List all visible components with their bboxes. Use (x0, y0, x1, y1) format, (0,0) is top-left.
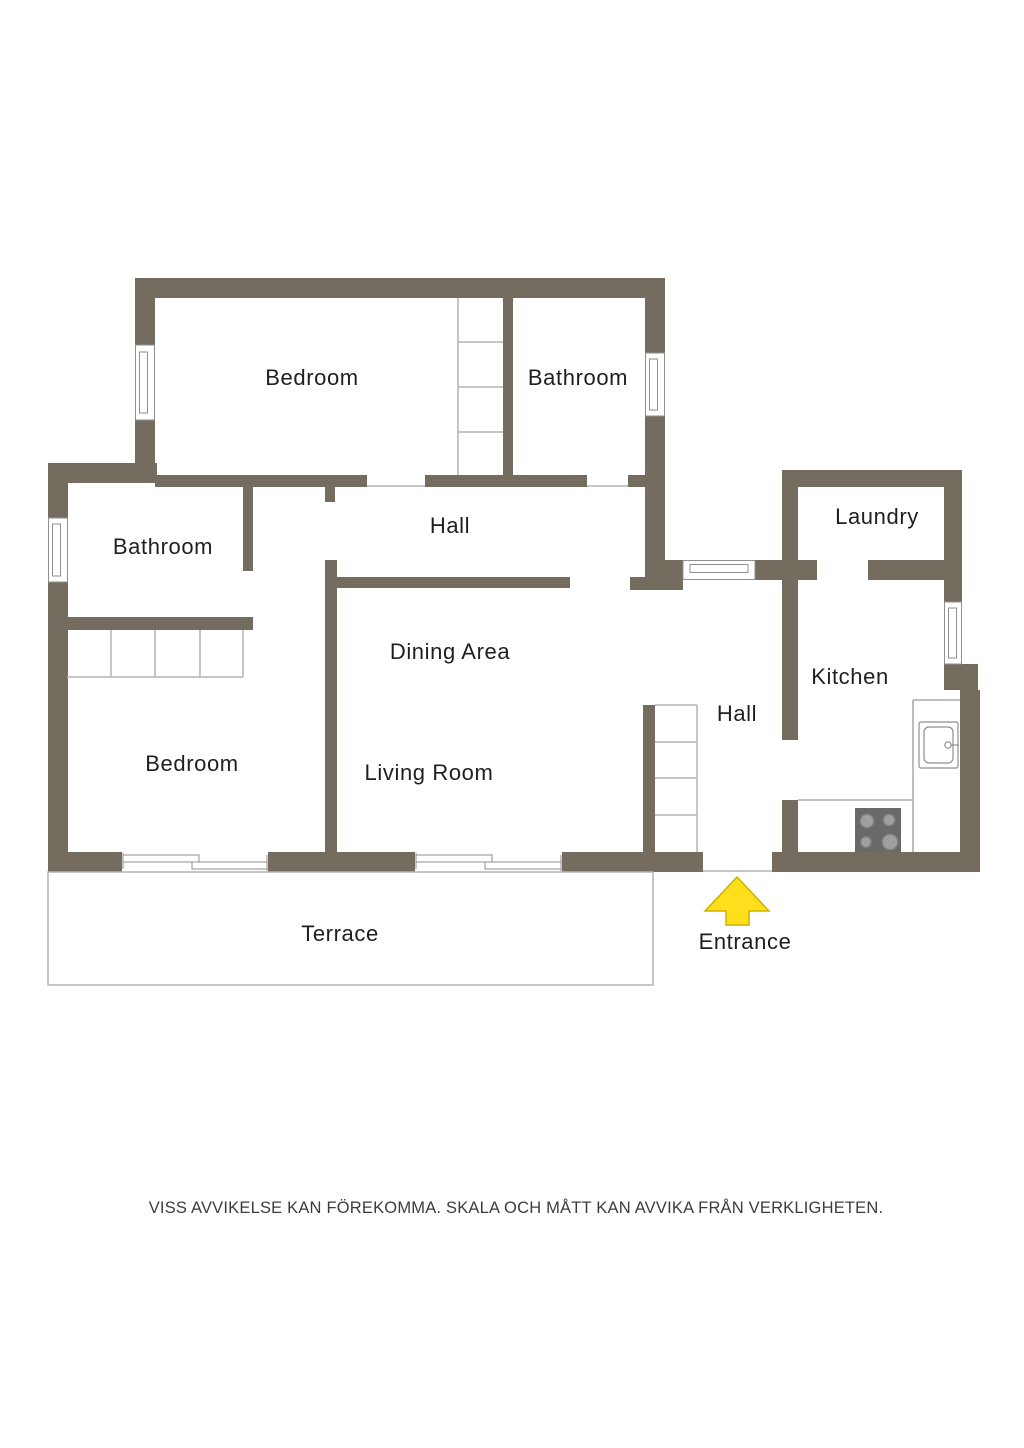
sliding-door (123, 853, 267, 871)
room-label-terrace: Terrace (301, 921, 379, 946)
wall-segment (663, 560, 683, 580)
sink-tap (945, 742, 951, 748)
wall-segment (645, 298, 665, 353)
disclaimer-row: VISS AVVIKELSE KAN FÖREKOMMA. SKALA OCH … (149, 1198, 884, 1217)
room-label-kitchen: Kitchen (811, 664, 889, 689)
closet-hall (655, 705, 697, 852)
room-label-laundry: Laundry (835, 504, 919, 529)
wall-segment (782, 800, 798, 852)
door-panel (485, 862, 561, 869)
wall-segment (772, 852, 980, 872)
window-sash (690, 565, 748, 573)
walls (48, 278, 980, 872)
closet-left (67, 630, 243, 677)
window-sash (650, 359, 658, 410)
stove-burner (882, 834, 898, 850)
wall-segment (645, 416, 665, 580)
wall-segment (48, 483, 68, 518)
stove-burner (861, 837, 872, 848)
window (646, 353, 665, 416)
wall-segment (48, 463, 157, 483)
window (945, 602, 962, 664)
wall-segment (155, 475, 367, 487)
wall-segment (48, 852, 122, 872)
door-panel (123, 855, 199, 862)
stove-icon (855, 808, 901, 852)
room-label-living: Living Room (365, 760, 494, 785)
wall-segment (782, 560, 817, 580)
stove-burner (883, 814, 895, 826)
window (683, 561, 755, 580)
sink-icon (919, 722, 959, 768)
closet-top (458, 298, 503, 475)
wall-segment (67, 617, 253, 630)
door-panel (192, 862, 267, 869)
wall-segment (425, 475, 587, 487)
room-label-hall-right: Hall (717, 701, 757, 726)
window (49, 518, 68, 582)
entrance-arrow-shape (705, 877, 769, 925)
window-sash (140, 352, 148, 413)
room-label-dining: Dining Area (390, 639, 511, 664)
wall-segment (944, 664, 978, 690)
wall-segment (562, 852, 703, 872)
room-label-bathroom-top: Bathroom (528, 365, 628, 390)
sliding-door (416, 853, 561, 871)
wall-segment (135, 298, 155, 345)
wall-segment (643, 705, 655, 853)
wall-segment (628, 475, 647, 487)
wall-segment (944, 470, 962, 602)
room-label-bedroom-top: Bedroom (265, 365, 358, 390)
room-label-bedroom-left: Bedroom (145, 751, 238, 776)
stove-burner (860, 814, 874, 828)
wall-segment (782, 470, 960, 487)
room-label-bathroom-left: Bathroom (113, 534, 213, 559)
entrance-arrow-icon (705, 877, 769, 925)
wall-segment (268, 852, 415, 872)
wall-segment (960, 690, 980, 871)
wall-segment (325, 487, 335, 502)
wall-segment (135, 278, 665, 298)
room-label-hall-top: Hall (430, 513, 470, 538)
window (136, 345, 155, 420)
wall-segment (782, 487, 798, 560)
door-panel (416, 855, 492, 862)
room-label-entrance: Entrance (699, 929, 792, 954)
wall-segment (325, 560, 337, 852)
floor-plan-drawing: Bedroom Bathroom Hall Bathroom Laundry D… (0, 0, 1024, 1448)
window-sash (53, 524, 61, 576)
wall-segment (782, 580, 798, 740)
window-sash (949, 608, 957, 658)
wall-segment (243, 487, 253, 571)
wall-segment (327, 577, 570, 588)
wall-segment (868, 560, 962, 580)
floor-plan-page: Bedroom Bathroom Hall Bathroom Laundry D… (0, 0, 1024, 1448)
wall-segment (48, 582, 68, 872)
disclaimer-text: VISS AVVIKELSE KAN FÖREKOMMA. SKALA OCH … (149, 1198, 884, 1217)
wall-segment (503, 298, 513, 475)
